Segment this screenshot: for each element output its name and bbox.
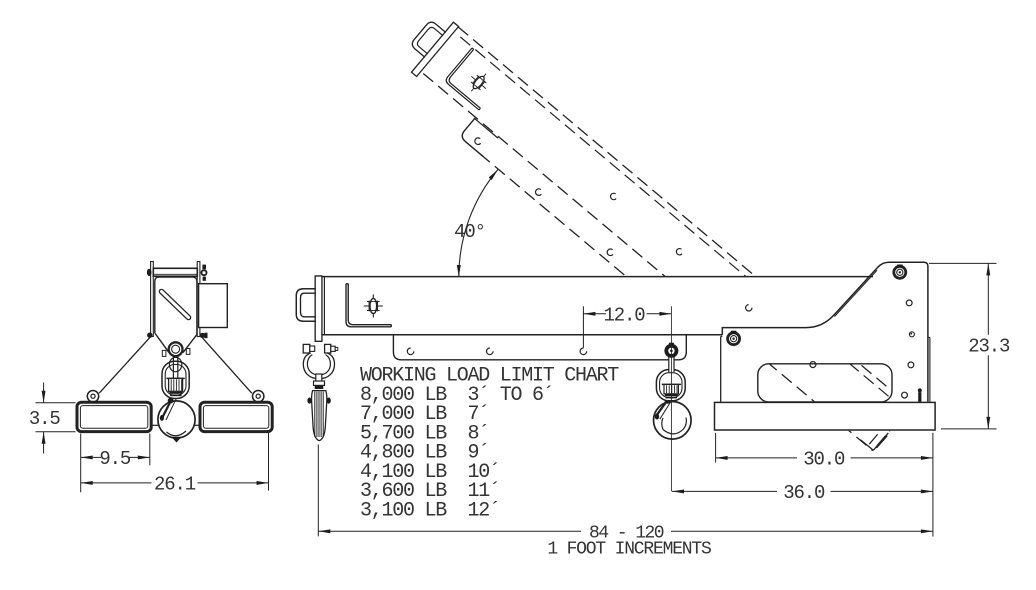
svg-text:3,100 LB 12´: 3,100 LB 12´ [360, 499, 500, 522]
svg-text:23.3: 23.3 [968, 336, 1010, 358]
svg-text:1 FOOT INCREMENTS: 1 FOOT INCREMENTS [547, 540, 711, 560]
svg-text:40°: 40° [454, 221, 485, 243]
svg-text:26.1: 26.1 [154, 474, 196, 496]
svg-text:30.0: 30.0 [803, 449, 845, 471]
svg-text:12.0: 12.0 [603, 304, 645, 326]
svg-text:36.0: 36.0 [783, 482, 825, 504]
svg-text:3.5: 3.5 [29, 408, 61, 430]
svg-text:9.5: 9.5 [99, 448, 131, 470]
